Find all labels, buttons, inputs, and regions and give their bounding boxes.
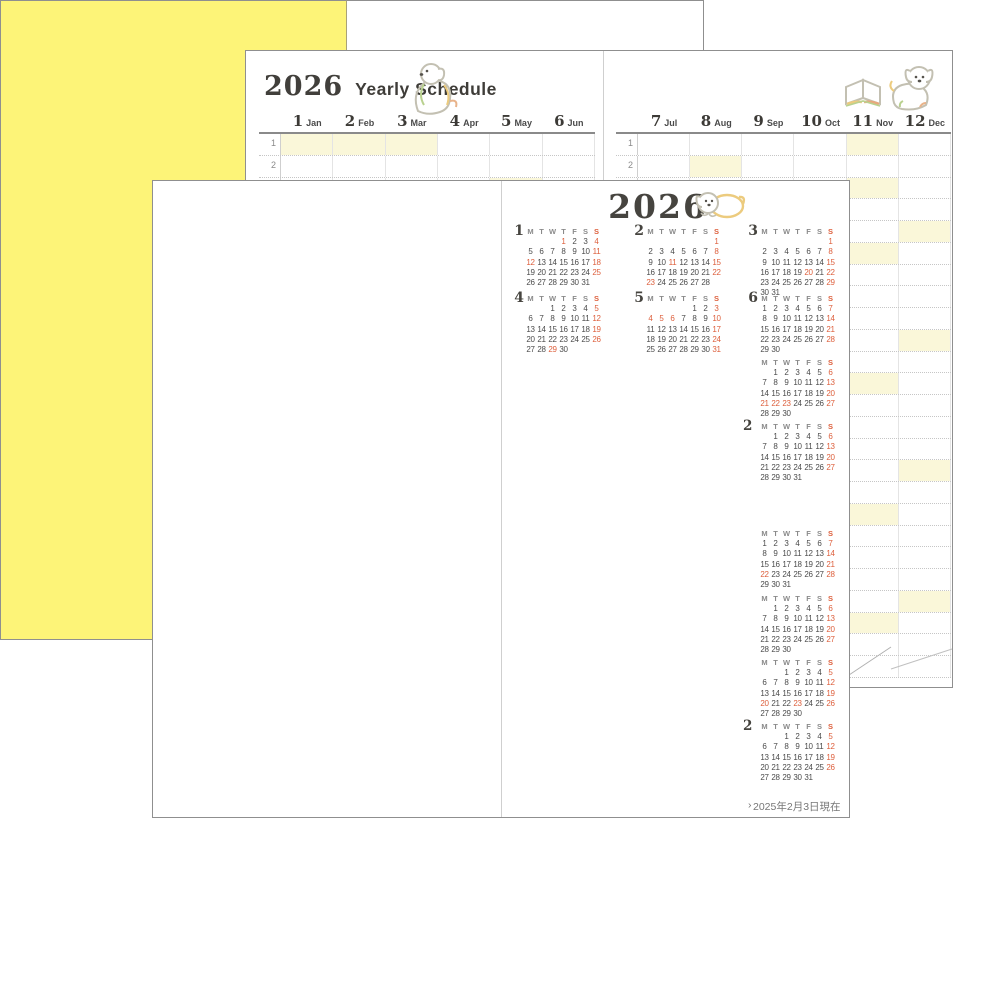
- date-cell: [770, 237, 781, 247]
- weekday-label: W: [667, 294, 678, 304]
- date-cell: 1: [759, 304, 770, 314]
- date-cell: 29: [781, 709, 792, 719]
- date-cell: 1: [770, 432, 781, 442]
- schedule-cell: [899, 373, 951, 394]
- weekday-label: T: [656, 227, 667, 237]
- date-cell: 31: [803, 773, 814, 783]
- mini-calendar-weekday-row: MTWTFSS: [759, 294, 837, 304]
- highlight-cell: [899, 330, 951, 351]
- date-cell: [803, 473, 814, 483]
- date-cell: 24: [569, 335, 580, 345]
- month-header-cell: 4Apr: [438, 112, 490, 132]
- date-cell: 16: [781, 453, 792, 463]
- date-cell: 24: [656, 278, 667, 288]
- date-cell: 20: [536, 268, 547, 278]
- date-cell: [759, 732, 770, 742]
- date-cell: 6: [667, 314, 678, 324]
- schedule-cell: [899, 482, 951, 503]
- weekday-label: T: [770, 422, 781, 432]
- mini-calendar-week-row: 282930: [759, 409, 837, 419]
- date-cell: 21: [770, 699, 781, 709]
- date-cell: 8: [781, 742, 792, 752]
- date-cell: 20: [814, 560, 825, 570]
- date-cell: 30: [781, 473, 792, 483]
- schedule-row: 2: [259, 156, 595, 178]
- mini-calendar-weekday-row: MTWTFSS: [759, 422, 837, 432]
- date-cell: 26: [678, 278, 689, 288]
- month-number: 5: [501, 112, 511, 130]
- month-abbr: Nov: [876, 118, 893, 128]
- mini-calendar-week-row: 23242526272829: [759, 278, 837, 288]
- mini-calendar-weekday-row: MTWTFSS: [759, 227, 837, 237]
- date-cell: 19: [591, 325, 602, 335]
- date-cell: 29: [759, 580, 770, 590]
- date-cell: 18: [803, 625, 814, 635]
- date-cell: [792, 409, 803, 419]
- date-cell: 26: [814, 463, 825, 473]
- date-cell: [759, 237, 770, 247]
- date-cell: 30: [781, 409, 792, 419]
- date-cell: 23: [558, 335, 569, 345]
- weekday-label: W: [547, 294, 558, 304]
- weekday-label: T: [656, 294, 667, 304]
- date-cell: 8: [689, 314, 700, 324]
- date-cell: 11: [667, 258, 678, 268]
- mini-calendar-week-row: 20212223242526: [759, 699, 837, 709]
- weekday-label: S: [814, 529, 825, 539]
- date-cell: 17: [803, 689, 814, 699]
- weekday-label: M: [525, 227, 536, 237]
- mini-calendar-week-row: 13141516171819: [525, 325, 603, 335]
- date-cell: 12: [814, 378, 825, 388]
- mini-calendar-week-row: 11121314151617: [645, 325, 723, 335]
- yearly-title-year: 2026: [264, 71, 343, 102]
- date-cell: 3: [656, 247, 667, 257]
- date-cell: 16: [645, 268, 656, 278]
- date-cell: 18: [814, 753, 825, 763]
- month-number: 12: [905, 112, 926, 130]
- date-cell: 21: [700, 268, 711, 278]
- date-cell: 19: [814, 625, 825, 635]
- date-cell: 5: [814, 604, 825, 614]
- mini-calendar-week-row: 16171819202122: [645, 268, 723, 278]
- date-cell: 2: [781, 368, 792, 378]
- date-cell: 30: [700, 345, 711, 355]
- mini-calendar-week-row: 16171819202122: [759, 268, 837, 278]
- date-cell: 1: [711, 237, 722, 247]
- date-cell: 25: [803, 463, 814, 473]
- date-cell: 16: [770, 325, 781, 335]
- schedule-cell: [847, 308, 899, 329]
- schedule-cell: [543, 134, 595, 155]
- date-cell: 5: [678, 247, 689, 257]
- weekday-label: F: [689, 294, 700, 304]
- date-cell: 12: [591, 314, 602, 324]
- date-cell: 12: [814, 442, 825, 452]
- date-cell: 13: [689, 258, 700, 268]
- row-label: 1: [616, 134, 638, 155]
- mini-month-number: 3: [741, 223, 758, 239]
- weekday-label: F: [689, 227, 700, 237]
- mini-calendar-week-row: 22232425262728: [759, 335, 837, 345]
- mini-calendar-week-row: 19202122232425: [525, 268, 603, 278]
- date-cell: 26: [814, 635, 825, 645]
- date-cell: 29: [558, 278, 569, 288]
- schedule-cell: [490, 134, 542, 155]
- weekday-label: S: [814, 358, 825, 368]
- date-cell: [792, 580, 803, 590]
- date-cell: 9: [792, 678, 803, 688]
- date-cell: 17: [803, 753, 814, 763]
- date-cell: 28: [759, 645, 770, 655]
- date-cell: 25: [814, 699, 825, 709]
- weekday-label: T: [792, 358, 803, 368]
- mini-calendar: MTWTFSS123456789101112131415161718192021…: [525, 227, 603, 288]
- date-cell: 9: [759, 258, 770, 268]
- schedule-cell: [899, 439, 951, 460]
- date-cell: 2: [781, 604, 792, 614]
- date-cell: 1: [759, 539, 770, 549]
- date-cell: 22: [825, 268, 836, 278]
- weekday-label: W: [781, 422, 792, 432]
- mini-calendar-week-row: 15161718192021: [759, 560, 837, 570]
- date-cell: 17: [770, 268, 781, 278]
- date-cell: 8: [781, 678, 792, 688]
- date-cell: 18: [792, 325, 803, 335]
- mini-month-number: 5: [627, 290, 644, 306]
- mini-calendar-week-row: 6789101112: [525, 314, 603, 324]
- date-cell: 15: [781, 689, 792, 699]
- date-cell: 9: [781, 442, 792, 452]
- mini-calendar: MTWTFSS123456789101112131415161718192021…: [759, 227, 837, 299]
- date-cell: 5: [792, 247, 803, 257]
- weekday-label: S: [825, 722, 836, 732]
- month-header-cell: 12Dec: [899, 112, 951, 132]
- date-cell: 11: [591, 247, 602, 257]
- date-cell: 28: [759, 473, 770, 483]
- weekday-label: W: [781, 658, 792, 668]
- table-header-row: 1Jan2Feb3Mar4Apr5May6Jun: [259, 111, 595, 134]
- weekday-label: T: [770, 594, 781, 604]
- date-cell: 27: [759, 773, 770, 783]
- date-cell: 15: [711, 258, 722, 268]
- date-cell: 6: [814, 304, 825, 314]
- month-header-cell: 3Mar: [386, 112, 438, 132]
- mini-calendar-week-row: 14151617181920: [759, 453, 837, 463]
- date-cell: 15: [547, 325, 558, 335]
- date-cell: 17: [781, 560, 792, 570]
- month-header-cell: 5May: [490, 112, 542, 132]
- mini-calendar-week-row: 27282930: [525, 345, 603, 355]
- weekday-label: T: [770, 722, 781, 732]
- date-cell: 24: [803, 699, 814, 709]
- weekday-label: S: [825, 529, 836, 539]
- highlight-cell: [847, 504, 899, 525]
- puppy-looking-back-icon: [886, 63, 940, 113]
- month-abbr: Aug: [714, 118, 732, 128]
- date-cell: 8: [770, 442, 781, 452]
- date-cell: [645, 304, 656, 314]
- date-cell: 29: [825, 278, 836, 288]
- date-cell: 19: [814, 389, 825, 399]
- date-cell: 7: [678, 314, 689, 324]
- weekday-label: S: [814, 722, 825, 732]
- date-cell: 26: [792, 278, 803, 288]
- date-cell: 11: [580, 314, 591, 324]
- weekday-label: M: [645, 294, 656, 304]
- month-number: 10: [801, 112, 822, 130]
- date-cell: 28: [770, 709, 781, 719]
- mini-calendar-week-row: 1: [645, 237, 723, 247]
- date-cell: 27: [759, 709, 770, 719]
- date-cell: 7: [825, 304, 836, 314]
- date-cell: 3: [781, 304, 792, 314]
- date-cell: [689, 237, 700, 247]
- date-cell: 21: [536, 335, 547, 345]
- date-cell: 11: [814, 678, 825, 688]
- date-cell: [803, 345, 814, 355]
- date-cell: 16: [792, 753, 803, 763]
- mini-calendar: MTWTFSS123456789101112131415161718192021…: [759, 658, 837, 719]
- schedule-cell: [899, 547, 951, 568]
- date-cell: 8: [759, 314, 770, 324]
- date-cell: 10: [711, 314, 722, 324]
- date-cell: 12: [678, 258, 689, 268]
- date-cell: 29: [770, 473, 781, 483]
- date-cell: 20: [689, 268, 700, 278]
- date-cell: 7: [536, 314, 547, 324]
- weekday-label: S: [814, 294, 825, 304]
- weekday-label: W: [667, 227, 678, 237]
- weekday-label: S: [825, 422, 836, 432]
- date-cell: 23: [759, 278, 770, 288]
- date-cell: 2: [792, 668, 803, 678]
- mini-calendar-week-row: 21222324252627: [759, 463, 837, 473]
- date-cell: 19: [825, 753, 836, 763]
- weekday-label: T: [536, 227, 547, 237]
- date-cell: 15: [770, 389, 781, 399]
- date-cell: 11: [814, 742, 825, 752]
- month-number: 6: [554, 112, 564, 130]
- date-cell: 9: [700, 314, 711, 324]
- weekday-label: S: [825, 294, 836, 304]
- schedule-cell: [438, 134, 490, 155]
- weekday-label: T: [792, 658, 803, 668]
- date-cell: 18: [792, 560, 803, 570]
- mini-calendar-week-row: 567891011: [525, 247, 603, 257]
- mini-month-number: 4: [507, 290, 524, 306]
- mini-calendar-week-row: 13141516171819: [759, 689, 837, 699]
- date-cell: 20: [814, 325, 825, 335]
- weekday-label: F: [803, 294, 814, 304]
- mini-calendar-week-row: 2728293031: [759, 773, 837, 783]
- mini-calendar: MTWTFSS123456789101112131415161718192021…: [525, 294, 603, 355]
- highlight-cell: [899, 221, 951, 242]
- mini-calendar-week-row: 1234567: [759, 539, 837, 549]
- date-cell: 29: [759, 345, 770, 355]
- date-cell: 25: [803, 635, 814, 645]
- date-cell: 3: [803, 668, 814, 678]
- weekday-label: T: [792, 594, 803, 604]
- mini-calendar-week-row: 293031: [759, 580, 837, 590]
- weekday-label: T: [678, 294, 689, 304]
- mini-calendar-weekday-row: MTWTFSS: [759, 658, 837, 668]
- mini-calendar-week-row: 2345678: [645, 247, 723, 257]
- highlight-cell: [847, 178, 899, 199]
- date-cell: [700, 237, 711, 247]
- date-cell: 28: [678, 345, 689, 355]
- date-cell: 18: [591, 258, 602, 268]
- date-cell: 1: [689, 304, 700, 314]
- product-photo-stage: 2026 Yearly Schedule: [0, 0, 1000, 1000]
- schedule-cell: [847, 439, 899, 460]
- schedule-cell: [847, 569, 899, 590]
- date-cell: 22: [770, 463, 781, 473]
- date-cell: 22: [759, 335, 770, 345]
- date-cell: 2: [558, 304, 569, 314]
- weekday-label: T: [536, 294, 547, 304]
- date-cell: 24: [711, 335, 722, 345]
- date-cell: 2: [770, 304, 781, 314]
- month-abbr: Jan: [306, 118, 322, 128]
- highlight-cell: [690, 156, 742, 177]
- date-cell: 30: [569, 278, 580, 288]
- weekday-label: T: [792, 529, 803, 539]
- mini-calendar-week-row: 14151617181920: [759, 625, 837, 635]
- date-cell: [536, 237, 547, 247]
- month-header-cell: 11Nov: [847, 112, 899, 132]
- date-cell: 13: [759, 689, 770, 699]
- date-cell: 4: [803, 604, 814, 614]
- date-cell: 4: [792, 539, 803, 549]
- date-cell: 30: [781, 645, 792, 655]
- date-cell: [656, 237, 667, 247]
- date-cell: 23: [645, 278, 656, 288]
- date-cell: [814, 709, 825, 719]
- date-cell: [792, 645, 803, 655]
- date-cell: 12: [525, 258, 536, 268]
- date-cell: 11: [803, 614, 814, 624]
- date-cell: 21: [547, 268, 558, 278]
- weekday-label: W: [781, 358, 792, 368]
- date-cell: 17: [711, 325, 722, 335]
- date-cell: 3: [792, 604, 803, 614]
- weekday-label: S: [711, 294, 722, 304]
- date-cell: [825, 345, 836, 355]
- mini-calendar-week-row: 21222324252627: [759, 399, 837, 409]
- mini-calendar-week-row: 78910111213: [759, 442, 837, 452]
- date-cell: 25: [781, 278, 792, 288]
- date-cell: 15: [689, 325, 700, 335]
- date-cell: 27: [803, 278, 814, 288]
- mini-calendar: MTWTFSS123456789101112131415161718192021…: [759, 358, 837, 419]
- month-number: 11: [852, 112, 873, 130]
- date-cell: 4: [645, 314, 656, 324]
- date-cell: [792, 345, 803, 355]
- schedule-cell: [638, 156, 690, 177]
- schedule-row: 2: [616, 156, 951, 178]
- date-cell: 11: [781, 258, 792, 268]
- schedule-cell: [847, 395, 899, 416]
- date-cell: 1: [770, 604, 781, 614]
- date-cell: 12: [656, 325, 667, 335]
- date-cell: [591, 345, 602, 355]
- date-cell: 29: [547, 345, 558, 355]
- date-cell: 4: [814, 668, 825, 678]
- date-cell: 6: [825, 368, 836, 378]
- schedule-cell: [847, 352, 899, 373]
- date-cell: 7: [825, 539, 836, 549]
- weekday-label: F: [803, 594, 814, 604]
- weekday-label: S: [591, 294, 602, 304]
- date-cell: [525, 304, 536, 314]
- date-cell: 30: [792, 709, 803, 719]
- date-cell: 25: [645, 345, 656, 355]
- date-cell: 13: [536, 258, 547, 268]
- month-abbr: Jun: [568, 118, 584, 128]
- month-number: 7: [651, 112, 661, 130]
- date-cell: 1: [825, 237, 836, 247]
- date-cell: 12: [825, 678, 836, 688]
- date-cell: 29: [689, 345, 700, 355]
- date-cell: 17: [580, 258, 591, 268]
- highlight-cell: [847, 243, 899, 264]
- date-cell: 13: [803, 258, 814, 268]
- date-cell: 25: [803, 399, 814, 409]
- date-cell: 25: [792, 335, 803, 345]
- highlight-cell: [847, 134, 899, 155]
- weekday-label: S: [700, 294, 711, 304]
- mini-calendar-week-row: 18192021222324: [645, 335, 723, 345]
- schedule-cell: [847, 199, 899, 220]
- weekday-label: M: [759, 529, 770, 539]
- date-cell: [792, 237, 803, 247]
- mini-calendar-week-row: 2930: [759, 345, 837, 355]
- date-cell: 16: [569, 258, 580, 268]
- highlight-cell: [386, 134, 438, 155]
- weekday-label: S: [825, 227, 836, 237]
- weekday-label: S: [700, 227, 711, 237]
- schedule-cell: [899, 417, 951, 438]
- date-cell: 5: [825, 732, 836, 742]
- date-cell: 10: [781, 549, 792, 559]
- schedule-cell: [690, 134, 742, 155]
- date-cell: 2: [781, 432, 792, 442]
- weekday-label: M: [759, 658, 770, 668]
- weekday-label: M: [759, 594, 770, 604]
- date-cell: 16: [558, 325, 569, 335]
- weekday-label: S: [825, 358, 836, 368]
- date-cell: 15: [825, 258, 836, 268]
- mini-calendar-week-row: 13141516171819: [759, 753, 837, 763]
- date-cell: 28: [770, 773, 781, 783]
- month-header-cell: 9Sep: [742, 112, 794, 132]
- row-label: 1: [259, 134, 281, 155]
- date-cell: 20: [825, 625, 836, 635]
- weekday-label: F: [803, 358, 814, 368]
- date-cell: 10: [656, 258, 667, 268]
- date-cell: 2: [569, 237, 580, 247]
- date-cell: 15: [781, 753, 792, 763]
- mini-calendar: MTWTFSS123456789101112131415161718192021…: [759, 422, 837, 483]
- date-cell: 26: [825, 699, 836, 709]
- date-cell: 1: [781, 668, 792, 678]
- month-abbr: May: [514, 118, 532, 128]
- weekday-label: M: [759, 358, 770, 368]
- weekday-label: W: [781, 294, 792, 304]
- schedule-row: 1: [616, 134, 951, 156]
- date-cell: 11: [645, 325, 656, 335]
